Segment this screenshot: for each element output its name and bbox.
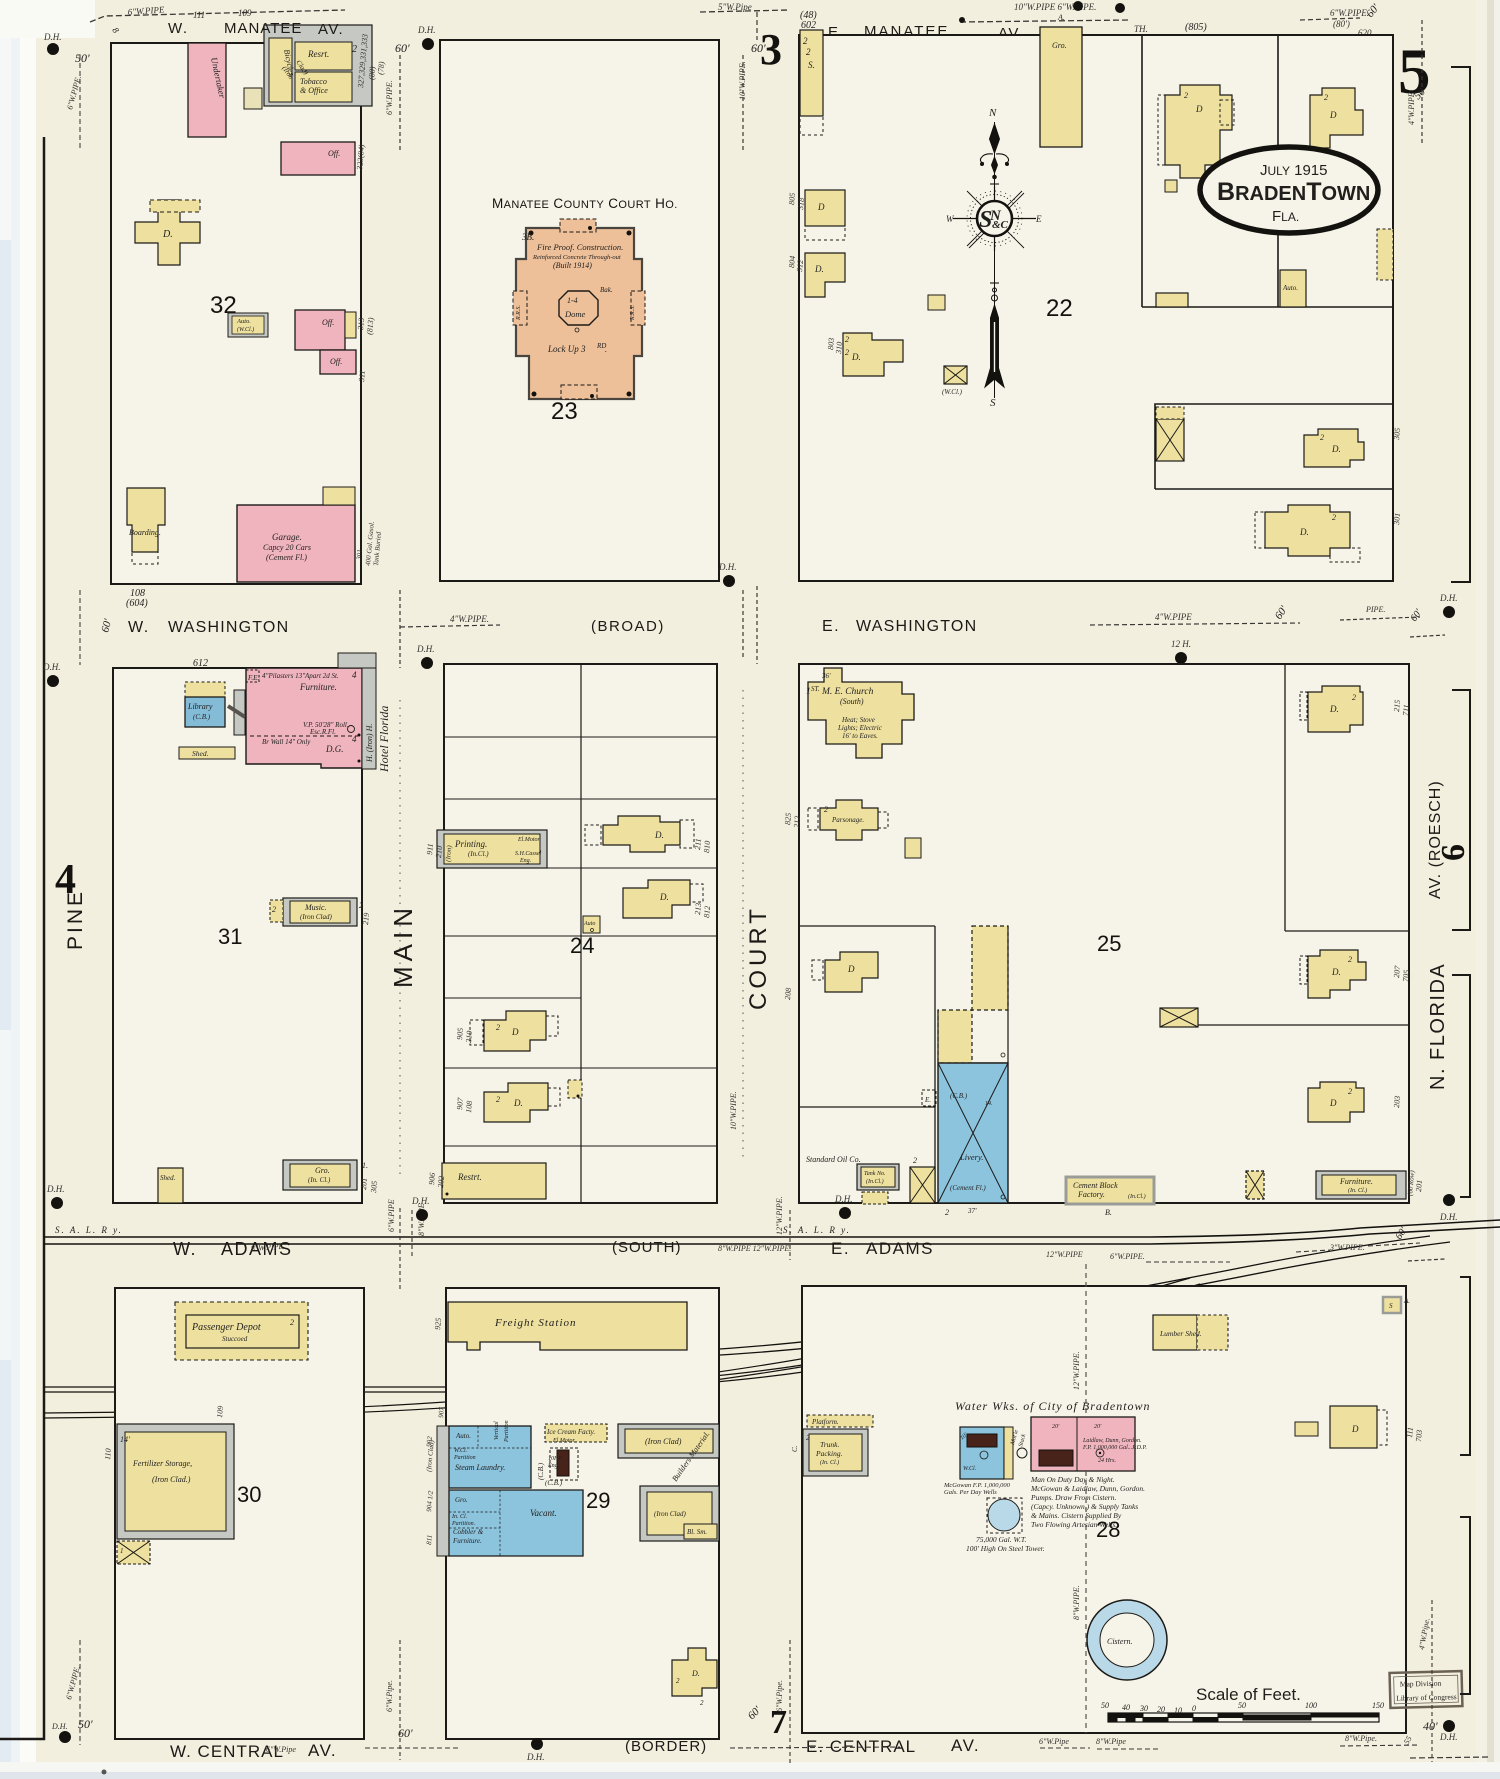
svg-text:D.G.: D.G. [325,744,344,754]
svg-text:D.H.: D.H. [1439,1212,1458,1222]
svg-text:Vertical: Vertical [494,1421,500,1440]
svg-text:703: 703 [1414,1429,1424,1442]
svg-text:Auto.: Auto. [236,318,251,325]
svg-text:D.: D. [1329,704,1339,714]
svg-text:(Iron Clad): (Iron Clad) [300,913,332,921]
svg-text:Passenger Depot: Passenger Depot [191,1322,261,1333]
svg-text:H. (Iron) H.: H. (Iron) H. [365,724,374,763]
svg-text:2: 2 [700,1699,704,1707]
svg-text:(In. Cl.): (In. Cl.) [820,1459,839,1466]
svg-text:D.H.: D.H. [526,1752,545,1762]
svg-text:AV.: AV. [308,1741,337,1760]
svg-text:612: 612 [193,658,208,669]
svg-text:Standard Oil Co.: Standard Oil Co. [806,1155,861,1164]
svg-text:301: 301 [1392,512,1402,526]
svg-text:12"W.PIPE: 12"W.PIPE [1046,1250,1083,1259]
svg-text:D.H.: D.H. [416,644,435,654]
svg-text:(C.B.): (C.B.) [950,1092,968,1100]
svg-text:311: 311 [357,370,367,383]
svg-text:109: 109 [215,1405,225,1418]
svg-text:40': 40' [1423,1719,1438,1733]
svg-text:Printing.: Printing. [454,839,487,849]
svg-text:Platform.: Platform. [811,1418,839,1426]
svg-text:Auto.: Auto. [1282,284,1298,292]
svg-text:Partition: Partition [504,1420,510,1443]
svg-text:50': 50' [75,51,90,65]
svg-text:75,000 Gal. W.T.: 75,000 Gal. W.T. [976,1535,1027,1544]
svg-text:A.: A. [1057,13,1065,22]
svg-text:2: 2 [1324,93,1328,102]
svg-text:(W.Cl.): (W.Cl.) [237,326,254,333]
svg-text:W.Cl.: W.Cl. [454,1448,467,1454]
svg-text:8"W.Pipe.: 8"W.Pipe. [1345,1734,1377,1743]
svg-text:109: 109 [238,8,252,18]
svg-text:Packing.: Packing. [815,1449,843,1458]
svg-text:D.: D. [1331,444,1341,454]
svg-text:R.R.S.: R.R.S. [630,305,636,321]
svg-text:2: 2 [1352,693,1356,702]
svg-text:D.: D. [659,892,669,902]
svg-text:2: 2 [496,1095,500,1104]
svg-text:(Iron Clad): (Iron Clad) [645,1437,682,1446]
svg-text:Fertilizer Storage,: Fertilizer Storage, [132,1459,192,1468]
svg-text:(604): (604) [126,598,148,609]
svg-text:2: 2 [806,1434,810,1442]
svg-text:31: 31 [218,924,242,949]
svg-text:Parsonage.: Parsonage. [831,816,864,824]
svg-text:(78): (78) [376,61,386,75]
svg-text:E.: E. [831,1239,850,1258]
svg-text:12 H.: 12 H. [1171,639,1191,649]
svg-text:ST.: ST. [811,685,820,693]
svg-text:202: 202 [436,1175,446,1188]
svg-text:2: 2 [945,1208,949,1217]
svg-text:20': 20' [1094,1424,1102,1430]
svg-text:Gro.: Gro. [315,1166,330,1175]
svg-text:AV.: AV. [318,21,344,38]
svg-text:2: 2 [496,1023,500,1032]
svg-text:2: 2 [290,1318,294,1327]
svg-text:3"W.PIPE.: 3"W.PIPE. [1329,1243,1365,1252]
svg-text:F.P. 1,000,000 Gal...P.D.P.: F.P. 1,000,000 Gal...P.D.P. [1082,1445,1147,1451]
svg-text:Partition.: Partition. [451,1521,475,1527]
svg-text:20: 20 [1157,1705,1165,1714]
svg-text:Furniture.: Furniture. [299,682,337,692]
svg-text:McGowan F.P. 1,000,000: McGowan F.P. 1,000,000 [943,1482,1011,1489]
svg-text:2: 2 [806,47,811,57]
svg-text:B.: B. [1105,1208,1112,1217]
svg-text:Map Division: Map Division [1400,1679,1442,1689]
svg-text:(Built 1914): (Built 1914) [553,261,592,270]
svg-text:JULY 1915: JULY 1915 [1260,162,1328,179]
svg-text:6"W.PIPE.: 6"W.PIPE. [1330,8,1369,18]
svg-text:Tobacco: Tobacco [300,77,327,86]
svg-text:Furniture.: Furniture. [1339,1177,1373,1186]
svg-text:6"W.Pipe: 6"W.Pipe [1039,1737,1069,1746]
svg-text:(BORDER): (BORDER) [625,1738,707,1755]
svg-text:6: 6 [1435,844,1472,861]
svg-text:Esc.R.Fl.: Esc.R.Fl. [309,728,336,736]
svg-text:Two Flowing Artesian Wells.: Two Flowing Artesian Wells. [1031,1520,1117,1529]
svg-text:Factory.: Factory. [1077,1190,1105,1199]
svg-text:(813): (813) [365,317,376,335]
svg-text:(South): (South) [840,697,864,706]
svg-text:Stuccoed: Stuccoed [222,1335,248,1343]
svg-text:24: 24 [570,933,594,958]
svg-text:805: 805 [787,192,797,205]
svg-text:& Mains. Cistern Supplied By: & Mains. Cistern Supplied By [1031,1511,1122,1520]
svg-text:711: 711 [1401,704,1411,716]
svg-text:(Iron Clad): (Iron Clad) [654,1510,686,1518]
svg-text:2: 2 [913,1156,917,1165]
svg-text:(In.Cl.): (In.Cl.) [866,1178,884,1185]
svg-text:W.: W. [168,20,189,37]
svg-text:FLA.: FLA. [1272,208,1299,225]
svg-text:Off.: Off. [330,357,342,366]
svg-text:4"W.PIPE: 4"W.PIPE [1407,92,1416,125]
svg-text:S. A. L. R y.: S. A. L. R y. [783,1225,851,1235]
svg-text:(In. Cl.): (In. Cl.) [308,1176,331,1184]
svg-text:(Iron): (Iron) [444,844,453,862]
svg-text:Cobbler &: Cobbler & [453,1528,484,1536]
svg-text:(W.Cl.): (W.Cl.) [942,388,963,396]
svg-text:D.H.: D.H. [834,1194,853,1204]
svg-text:PIPE.: PIPE. [1365,605,1385,614]
svg-text:&C: &C [992,219,1009,231]
svg-text:907: 907 [437,1407,446,1419]
svg-text:22: 22 [1046,295,1073,322]
svg-text:Off.: Off. [322,318,334,327]
svg-text:2: 2 [352,44,357,55]
svg-text:D.: D. [1299,527,1309,537]
svg-text:Livery.: Livery. [959,1152,983,1162]
svg-text:2: 2 [1332,513,1336,522]
svg-text:D.: D. [654,830,664,840]
svg-text:8"W.PIPE 12"W.PIPE.: 8"W.PIPE 12"W.PIPE. [718,1244,791,1253]
svg-text:Laidlaw, Dunn, Gordon.: Laidlaw, Dunn, Gordon. [1082,1438,1142,1444]
svg-text:Eng.: Eng. [547,1463,559,1469]
svg-text:305: 305 [369,1180,379,1194]
svg-text:D: D [1329,1098,1337,1108]
svg-text:318: 318 [796,197,806,211]
svg-text:(Cement Fl.): (Cement Fl.) [950,1184,986,1192]
svg-text:Lumber Shed.: Lumber Shed. [1159,1329,1202,1338]
svg-text:ADAMS: ADAMS [866,1239,934,1258]
svg-text:37': 37' [967,1207,977,1215]
svg-text:Vacant.: Vacant. [530,1508,557,1518]
svg-text:201: 201 [359,1177,369,1190]
svg-text:10HP: 10HP [548,1456,562,1462]
svg-text:E.: E. [924,1096,931,1104]
svg-text:E.: E. [822,618,840,635]
svg-text:108: 108 [464,1100,474,1113]
svg-text:Shed.: Shed. [192,749,209,758]
svg-text:In. Cl.: In. Cl. [451,1514,467,1520]
svg-text:S.H.Cassel: S.H.Cassel [515,851,542,857]
svg-text:4: 4 [352,670,357,680]
svg-text:6"W.Pipe.: 6"W.Pipe. [775,1680,784,1712]
svg-text:(In.Cl.): (In.Cl.) [1128,1193,1146,1200]
svg-text:Hotel Florida: Hotel Florida [377,706,391,773]
svg-text:210: 210 [434,845,444,858]
svg-text:AV.: AV. [951,1736,980,1755]
svg-text:D.H.: D.H. [1439,1732,1458,1742]
svg-text:14.: 14. [985,1100,993,1107]
svg-text:D: D [511,1027,519,1037]
svg-text:Garage.: Garage. [272,532,302,542]
svg-text:2: 2 [1348,1087,1352,1096]
svg-text:Dome: Dome [564,309,586,319]
svg-text:4"W.PIPE.: 4"W.PIPE. [450,614,489,624]
svg-text:10"W.PIPE 6"W.PIPE.: 10"W.PIPE 6"W.PIPE. [1014,2,1096,12]
svg-text:24 Hrs.: 24 Hrs. [1098,1457,1116,1464]
svg-text:Capcy 20 Cars: Capcy 20 Cars [263,543,311,552]
svg-text:El.Motor: El.Motor [517,837,540,843]
svg-text:WASHINGTON: WASHINGTON [168,619,289,636]
svg-text:212: 212 [792,815,802,828]
svg-text:Lights; Electric: Lights; Electric [837,724,883,732]
svg-text:E: E [1035,214,1042,224]
svg-text:Tank No.: Tank No. [864,1171,885,1177]
svg-text:705: 705 [1401,969,1411,982]
svg-text:Auto: Auto [583,921,595,927]
svg-text:312: 312 [795,259,805,273]
svg-text:10"W.PIPE.: 10"W.PIPE. [729,1091,738,1130]
svg-text:60': 60' [395,41,410,55]
svg-text:M. E. Church: M. E. Church [821,687,874,697]
svg-text:(C.B.): (C.B.) [193,713,211,721]
svg-text:40: 40 [1122,1703,1130,1712]
svg-text:(BROAD): (BROAD) [591,618,665,635]
svg-text:2: 2 [359,901,363,910]
svg-text:Music.: Music. [304,903,327,912]
svg-text:Gro.: Gro. [1052,41,1067,50]
svg-text:D: D [1351,1424,1359,1434]
svg-text:25: 25 [1097,931,1121,956]
svg-text:McGowan & Laidlaw, Dunn, Gordo: McGowan & Laidlaw, Dunn, Gordon. [1030,1484,1145,1493]
svg-text:811: 811 [425,1535,434,1546]
svg-text:12"W.PIPE.: 12"W.PIPE. [775,1196,784,1235]
svg-text:D: D [817,202,825,212]
svg-text:Trunk.: Trunk. [820,1440,840,1449]
svg-text:N. FLORIDA: N. FLORIDA [1427,963,1449,1090]
svg-text:Partition: Partition [453,1455,476,1461]
svg-text:203: 203 [1392,1095,1402,1108]
svg-text:D.: D. [691,1669,700,1678]
svg-text:El.Motor: El.Motor [552,1438,575,1444]
svg-text:16' to Eaves.: 16' to Eaves. [842,732,878,740]
svg-text:D.H.: D.H. [46,1184,65,1194]
svg-text:305: 305 [1392,427,1402,441]
svg-text:W.: W. [128,619,150,636]
svg-text:301: 301 [355,549,364,561]
svg-text:36': 36' [821,672,831,680]
svg-text:Gals. Per Day Wells: Gals. Per Day Wells [944,1489,997,1496]
svg-text:925: 925 [433,1317,443,1330]
svg-text:2: 2 [845,335,849,344]
svg-text:COURT: COURT [745,905,772,1010]
svg-text:D.H.: D.H. [411,1196,430,1206]
svg-text:D.H.: D.H. [43,32,62,42]
svg-text:2: 2 [845,348,849,357]
svg-text:4: 4 [352,734,357,744]
svg-text:6"W.Pipe: 6"W.Pipe [266,1745,296,1754]
svg-text:D.H.: D.H. [1439,593,1458,603]
svg-text:(In.Cl.): (In.Cl.) [468,850,489,858]
svg-text:D.: D. [513,1098,523,1108]
svg-text:Off.: Off. [328,149,340,158]
svg-text:F.E.: F.E. [247,674,259,682]
svg-text:Man On Duty Day & Night.: Man On Duty Day & Night. [1030,1475,1115,1484]
svg-text:AV. (ROESCH): AV. (ROESCH) [1427,780,1444,899]
svg-text:1.: 1. [362,1161,368,1170]
svg-text:Pumps. Draw From Cistern.: Pumps. Draw From Cistern. [1030,1493,1116,1502]
svg-text:50: 50 [1101,1701,1109,1710]
svg-text:D: D [847,964,855,974]
svg-text:S.: S. [808,60,815,70]
svg-text:(80'): (80') [1333,19,1350,29]
svg-text:(Capcy. Unknown,) & Supply Tan: (Capcy. Unknown,) & Supply Tanks [1031,1502,1138,1511]
svg-text:0: 0 [1192,1704,1196,1713]
svg-text:4"Pilasters 13"Apart 2d St.: 4"Pilasters 13"Apart 2d St. [262,672,339,680]
svg-text:S: S [1389,1302,1393,1310]
svg-text:TH.: TH. [1134,24,1148,34]
svg-text:10: 10 [1174,1706,1182,1715]
svg-text:D.: D. [851,352,861,362]
svg-text:23: 23 [551,398,578,425]
svg-text:D.H.: D.H. [718,562,737,572]
svg-text:8"W.PIPE.: 8"W.PIPE. [1072,1585,1081,1620]
svg-text:Steam Laundry.: Steam Laundry. [455,1463,505,1472]
svg-text:2: 2 [1320,433,1324,442]
svg-text:310: 310 [834,341,844,355]
svg-text:Furniture.: Furniture. [452,1537,482,1545]
svg-text:D.: D. [162,229,173,240]
svg-text:2: 2 [1184,91,1188,100]
svg-text:MANATEE: MANATEE [224,20,302,37]
svg-text:810: 810 [702,840,712,853]
svg-text:D.H.: D.H. [417,25,436,35]
svg-text:D: D [1195,104,1203,114]
svg-text:Water Wks. of City of Bradento: Water Wks. of City of Bradentown [955,1399,1151,1413]
svg-text:N: N [988,107,997,119]
svg-text:201: 201 [1414,1179,1424,1192]
svg-text:Heat; Stove: Heat; Stove [841,716,875,724]
svg-text:12"W.PIPE.: 12"W.PIPE. [1072,1351,1081,1390]
svg-text:1: 1 [120,1547,124,1555]
svg-text:Shed.: Shed. [160,1174,176,1182]
svg-text:Boarding.: Boarding. [129,528,161,537]
svg-text:100: 100 [1305,1701,1317,1710]
svg-text:3B.: 3B. [521,232,534,242]
svg-text:2: 2 [824,805,828,814]
svg-text:50: 50 [1238,1701,1246,1710]
svg-text:Freight Station: Freight Station [494,1317,577,1329]
svg-text:111: 111 [1405,1427,1415,1439]
svg-text:208: 208 [783,987,793,1000]
svg-text:30: 30 [1139,1704,1148,1713]
svg-text:20': 20' [1052,1424,1060,1430]
svg-text:Lock Up 3: Lock Up 3 [547,344,586,354]
svg-text:100' High On Steel Tower.: 100' High On Steel Tower. [966,1544,1045,1553]
svg-text:Library of Congress: Library of Congress [1396,1692,1457,1703]
svg-text:110: 110 [103,1448,113,1460]
svg-text:14': 14' [120,1435,130,1444]
svg-text:(Iron Clad.): (Iron Clad.) [152,1475,191,1484]
svg-text:2: 2 [803,36,808,46]
svg-text:2: 2 [676,1677,680,1685]
svg-text:(In. Cl.): (In. Cl.) [1348,1187,1367,1194]
svg-text:Restrt.: Restrt. [457,1172,482,1182]
svg-text:30: 30 [237,1482,261,1507]
svg-text:C.: C. [791,1445,799,1452]
svg-text:Bak.: Bak. [600,286,613,294]
svg-text:6"W.PIPE.: 6"W.PIPE. [385,80,394,115]
svg-text:Cistern.: Cistern. [1107,1637,1133,1646]
svg-text:D.: D. [814,264,824,274]
svg-text:Br Wall 14" Only: Br Wall 14" Only [262,738,311,746]
svg-text:150: 150 [1372,1701,1384,1710]
svg-text:6"W.PIPE.: 6"W.PIPE. [1110,1252,1145,1261]
svg-text:.: . [605,345,607,354]
svg-text:111: 111 [193,10,205,20]
svg-text:PINE: PINE [64,889,87,950]
svg-text:Library: Library [187,702,213,711]
svg-text:WASHINGTON: WASHINGTON [856,618,977,635]
svg-text:Bl. Sm.: Bl. Sm. [687,1528,707,1536]
svg-text:602: 602 [801,20,816,31]
svg-text:(Cement Fl.): (Cement Fl.) [266,553,307,562]
svg-text:D: D [1329,110,1337,120]
svg-text:Ice Cream Facty.: Ice Cream Facty. [546,1428,595,1436]
svg-text:Scale of Feet.: Scale of Feet. [1196,1685,1301,1704]
svg-text:Auto.: Auto. [455,1432,471,1440]
svg-text:Cement Block: Cement Block [1073,1181,1118,1190]
svg-text:Reinforced Concrete Through-ou: Reinforced Concrete Through-out [532,254,621,261]
svg-text:219: 219 [361,912,371,925]
svg-text:6"W.Pipe.: 6"W.Pipe. [385,1680,394,1712]
svg-text:2: 2 [1348,955,1352,964]
svg-text:& Office: & Office [300,86,328,95]
svg-text:6"W.PIPE: 6"W.PIPE [387,1199,396,1232]
svg-text:2: 2 [272,905,276,914]
svg-text:Eng.: Eng. [519,858,531,864]
svg-text:812: 812 [702,905,712,918]
svg-text:8"W.Pipe: 8"W.Pipe [1096,1737,1126,1746]
svg-text:210: 210 [464,1030,474,1043]
svg-text:10"W.PIPE.: 10"W.PIPE. [738,61,747,100]
svg-text:29: 29 [586,1488,610,1513]
svg-text:50': 50' [78,1717,93,1731]
svg-text:(C.B.): (C.B.) [537,1462,545,1480]
svg-text:(SOUTH): (SOUTH) [612,1239,682,1256]
svg-text:R.R.S.: R.R.S. [516,305,522,321]
svg-text:3: 3 [760,25,782,74]
svg-text:S: S [990,397,996,409]
svg-text:A.: A. [1403,1297,1410,1305]
svg-text:Fire Proof. Construction.: Fire Proof. Construction. [536,242,623,252]
svg-text:MAIN: MAIN [388,903,418,988]
svg-text:BRADENTOWN: BRADENTOWN [1217,178,1370,206]
svg-text:S. A. L. R y.: S. A. L. R y. [55,1225,123,1235]
svg-text:MANATEE COUNTY COURT HO.: MANATEE COUNTY COURT HO. [492,196,678,211]
svg-text:W.Cl.: W.Cl. [963,1466,976,1472]
svg-text:(805): (805) [1185,22,1207,33]
svg-text:W.: W. [173,1239,197,1259]
svg-text:4"W.PIPE: 4"W.PIPE [1155,612,1192,622]
svg-text:D.H.: D.H. [51,1722,68,1731]
svg-text:1-4: 1-4 [567,296,578,305]
